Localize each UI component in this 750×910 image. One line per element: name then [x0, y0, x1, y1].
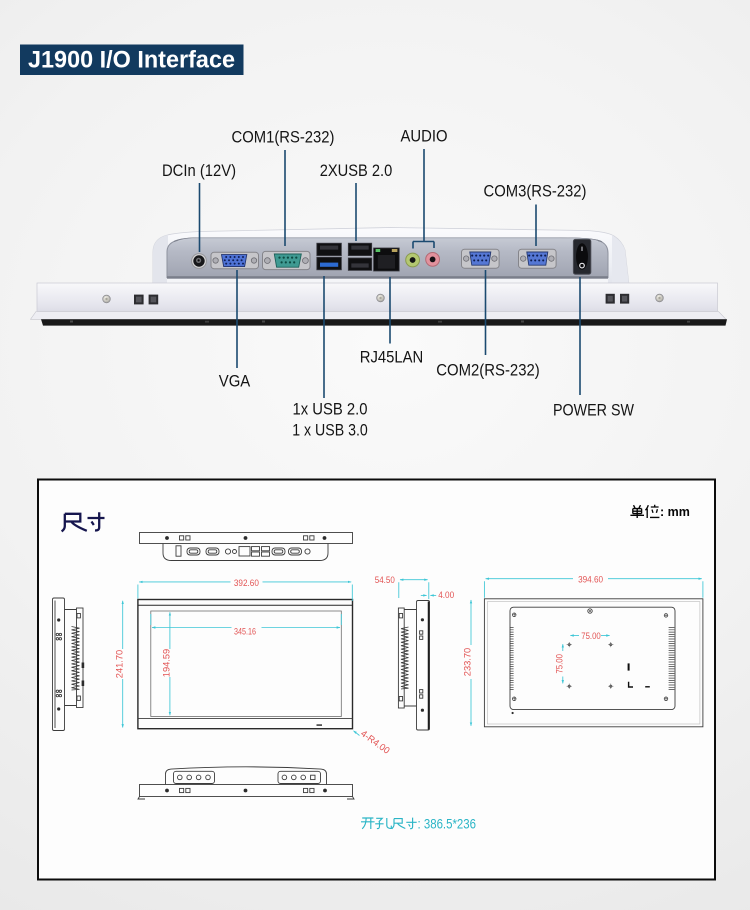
svg-text:4.00: 4.00: [438, 590, 454, 600]
svg-text:75.00: 75.00: [554, 654, 564, 674]
svg-text:194.59: 194.59: [162, 649, 172, 677]
svg-text:COM3(RS-232): COM3(RS-232): [484, 182, 587, 201]
svg-text:233.70: 233.70: [463, 648, 473, 676]
svg-text:75.00: 75.00: [581, 631, 601, 641]
svg-text:J1900 I/O Interface: J1900 I/O Interface: [28, 47, 235, 74]
svg-text:COM2(RS-232): COM2(RS-232): [436, 361, 540, 380]
svg-text:POWER SW: POWER SW: [553, 401, 634, 420]
svg-text:394.60: 394.60: [578, 574, 603, 584]
svg-text:241.70: 241.70: [114, 650, 124, 678]
svg-text:RJ45LAN: RJ45LAN: [360, 348, 424, 367]
svg-text:VGA: VGA: [219, 372, 251, 391]
svg-text:: mm: : mm: [660, 505, 690, 519]
svg-text:AUDIO: AUDIO: [401, 127, 448, 146]
svg-text:392.60: 392.60: [234, 578, 259, 588]
svg-text:54.50: 54.50: [375, 575, 395, 585]
svg-text:1x USB 2.0: 1x USB 2.0: [293, 400, 368, 419]
svg-text:DCIn (12V): DCIn (12V): [162, 161, 236, 180]
svg-text:345.16: 345.16: [234, 627, 256, 637]
svg-text:: 386.5*236: : 386.5*236: [418, 817, 477, 832]
svg-text:1 x USB 3.0: 1 x USB 3.0: [292, 421, 368, 440]
svg-text:COM1(RS-232): COM1(RS-232): [232, 128, 335, 147]
svg-text:2XUSB 2.0: 2XUSB 2.0: [320, 161, 393, 180]
